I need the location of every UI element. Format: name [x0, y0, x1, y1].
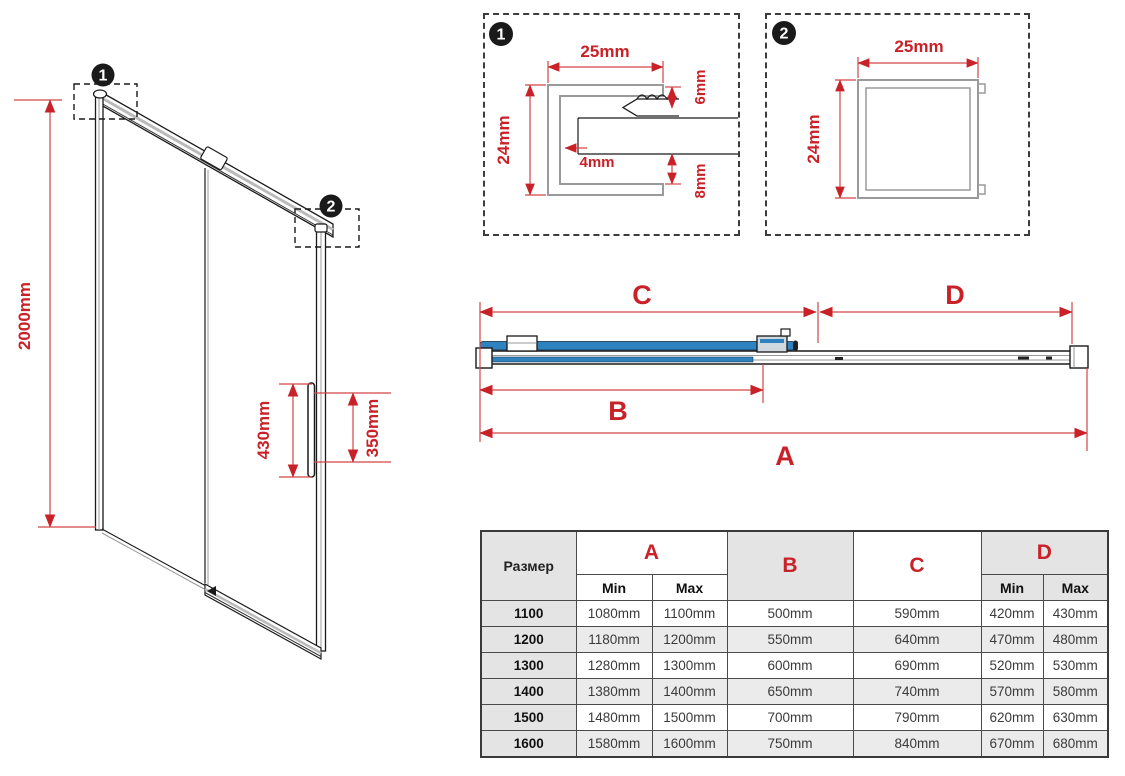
detail-1-panel: 1 25mm — [483, 13, 740, 236]
detail-1-drawing: 1 25mm — [485, 15, 738, 234]
detail-2-badge: 2 — [772, 21, 796, 45]
table-header-row: Размер A B C D — [481, 531, 1108, 575]
cell-d-max: 480mm — [1043, 627, 1108, 653]
handle-height-dim-label: 430mm — [254, 401, 273, 460]
detail-1-height-dim: 24mm — [494, 85, 546, 195]
dimension-a: A — [480, 368, 1087, 471]
wall-channel-profile — [548, 85, 663, 195]
cell-a-max: 1400mm — [652, 679, 727, 705]
cell-b: 750mm — [727, 731, 853, 757]
cell-a-min: 1280mm — [576, 653, 652, 679]
dim-b-label: B — [608, 396, 628, 426]
left-wall-profile — [94, 90, 107, 530]
cell-d-max: 530mm — [1043, 653, 1108, 679]
col-header-d: D — [981, 531, 1108, 575]
door-handle — [308, 383, 315, 477]
detail-2-width-dim: 25mm — [858, 37, 978, 78]
cell-a-max: 1600mm — [652, 731, 727, 757]
detail-1-gap-dim: 4mm — [565, 148, 615, 171]
cell-size: 1200 — [481, 627, 576, 653]
cell-d-max: 630mm — [1043, 705, 1108, 731]
door-end-cap — [793, 341, 798, 352]
detail-2-panel: 2 25mm 24mm — [765, 13, 1030, 236]
svg-text:8mm: 8mm — [692, 163, 709, 198]
cell-c: 640mm — [853, 627, 981, 653]
cell-d-max: 680mm — [1043, 731, 1108, 757]
a-min-header: Min — [576, 575, 652, 601]
installation-diagram: 1 2 2000mm 430mm 350mm — [0, 0, 1125, 776]
col-header-a: A — [576, 531, 727, 575]
col-header-size: Размер — [481, 531, 576, 601]
table-row: 1300 1280mm 1300mm 600mm 690mm 520mm 530… — [481, 653, 1108, 679]
left-wall-profile-section — [476, 348, 492, 368]
cell-d-min: 620mm — [981, 705, 1043, 731]
cell-d-min: 420mm — [981, 601, 1043, 627]
detail-2-drawing: 2 25mm 24mm — [767, 15, 1028, 234]
cell-d-max: 430mm — [1043, 601, 1108, 627]
door-perspective-drawing: 1 2 2000mm 430mm 350mm — [0, 0, 460, 776]
size-table: Размер A B C D Min Max Min Max 1100 1080… — [480, 530, 1109, 758]
cell-c: 790mm — [853, 705, 981, 731]
callout-1-number: 1 — [99, 68, 108, 85]
svg-text:4mm: 4mm — [579, 154, 614, 171]
cell-a-min: 1080mm — [576, 601, 652, 627]
handle-spacing-dim-label: 350mm — [363, 399, 382, 458]
glass-seal — [623, 95, 679, 116]
svg-text:25mm: 25mm — [894, 37, 943, 56]
callout-2-number: 2 — [327, 199, 336, 216]
cell-c: 690mm — [853, 653, 981, 679]
cell-b: 550mm — [727, 627, 853, 653]
cell-size: 1600 — [481, 731, 576, 757]
cell-size: 1100 — [481, 601, 576, 627]
table-row: 1600 1580mm 1600mm 750mm 840mm 670mm 680… — [481, 731, 1108, 757]
dimension-b: B — [480, 364, 763, 426]
cell-size: 1300 — [481, 653, 576, 679]
dimension-2000mm: 2000mm — [14, 100, 96, 527]
detail-1-badge: 1 — [489, 22, 513, 46]
cell-b: 500mm — [727, 601, 853, 627]
cell-d-min: 670mm — [981, 731, 1043, 757]
height-dim-label: 2000mm — [15, 282, 34, 350]
right-door-profile — [315, 224, 327, 651]
detail-1-bottom-dim: 8mm — [665, 154, 709, 199]
cell-a-min: 1380mm — [576, 679, 652, 705]
right-wall-profile-section — [1070, 346, 1088, 368]
cell-a-max: 1200mm — [652, 627, 727, 653]
dim-a-label: A — [775, 441, 795, 471]
bottom-rail — [102, 529, 321, 659]
dimension-d: D — [820, 280, 1072, 344]
cell-b: 650mm — [727, 679, 853, 705]
dimension-430mm: 430mm — [254, 384, 312, 477]
square-profile — [858, 80, 985, 198]
svg-text:24mm: 24mm — [494, 115, 513, 164]
detail-2-height-dim: 24mm — [804, 80, 856, 198]
dim-c-label: C — [632, 280, 652, 310]
table-row: 1500 1480mm 1500mm 700mm 790mm 620mm 630… — [481, 705, 1108, 731]
table-row: 1100 1080mm 1100mm 500mm 590mm 420mm 430… — [481, 601, 1108, 627]
table-row: 1200 1180mm 1200mm 550mm 640mm 470mm 480… — [481, 627, 1108, 653]
cell-a-max: 1300mm — [652, 653, 727, 679]
col-header-c: C — [853, 531, 981, 601]
svg-text:25mm: 25mm — [580, 42, 629, 61]
roller-bracket-right — [757, 329, 790, 352]
cell-a-min: 1580mm — [576, 731, 652, 757]
cell-b: 700mm — [727, 705, 853, 731]
cell-c: 840mm — [853, 731, 981, 757]
cell-c: 740mm — [853, 679, 981, 705]
cell-d-min: 470mm — [981, 627, 1043, 653]
cell-size: 1400 — [481, 679, 576, 705]
cell-size: 1500 — [481, 705, 576, 731]
fixed-glass-edge — [205, 168, 208, 585]
cell-a-min: 1180mm — [576, 627, 652, 653]
glass-panel-edge — [578, 118, 738, 154]
svg-text:2: 2 — [780, 26, 789, 43]
cell-b: 600mm — [727, 653, 853, 679]
d-min-header: Min — [981, 575, 1043, 601]
cell-a-max: 1500mm — [652, 705, 727, 731]
cell-a-min: 1480mm — [576, 705, 652, 731]
dim-d-label: D — [945, 280, 965, 310]
svg-text:6mm: 6mm — [692, 69, 709, 104]
svg-text:1: 1 — [497, 27, 506, 44]
roller-bracket-left — [507, 336, 537, 351]
d-max-header: Max — [1043, 575, 1108, 601]
plan-cross-section: C D B A — [460, 270, 1125, 480]
cell-c: 590mm — [853, 601, 981, 627]
col-header-b: B — [727, 531, 853, 601]
a-max-header: Max — [652, 575, 727, 601]
detail-1-top-dim: 6mm — [665, 69, 709, 108]
cell-d-min: 570mm — [981, 679, 1043, 705]
cell-d-max: 580mm — [1043, 679, 1108, 705]
detail-1-width-dim: 25mm — [548, 42, 663, 83]
cell-a-max: 1100mm — [652, 601, 727, 627]
table-row: 1400 1380mm 1400mm 650mm 740mm 570mm 580… — [481, 679, 1108, 705]
cell-d-min: 520mm — [981, 653, 1043, 679]
svg-text:24mm: 24mm — [804, 114, 823, 163]
